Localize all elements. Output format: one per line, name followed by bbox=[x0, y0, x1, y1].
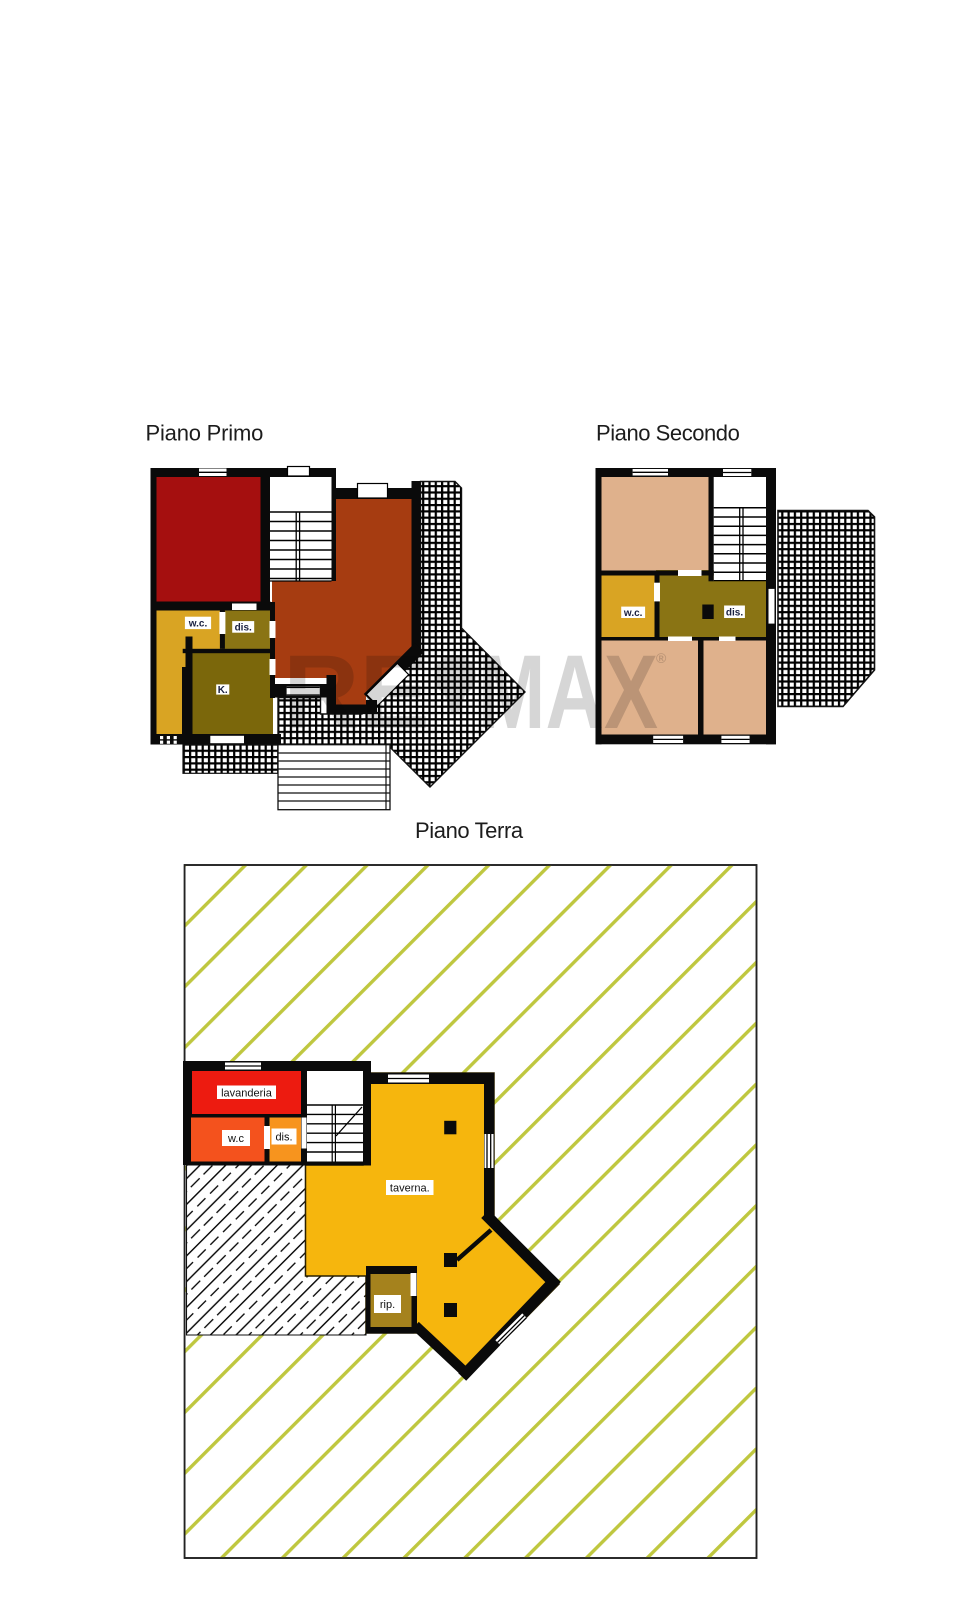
svg-text:w.c: w.c bbox=[227, 1133, 244, 1145]
svg-text:®: ® bbox=[656, 650, 667, 666]
svg-text:Piano Secondo: Piano Secondo bbox=[596, 421, 740, 446]
svg-text:w.c.: w.c. bbox=[188, 619, 208, 630]
svg-text:RE: RE bbox=[283, 634, 430, 751]
svg-text:K.: K. bbox=[218, 685, 228, 696]
svg-text:rip.: rip. bbox=[380, 1299, 395, 1311]
svg-text:w.c.: w.c. bbox=[623, 608, 643, 619]
svg-text:Piano Terra: Piano Terra bbox=[415, 818, 524, 843]
svg-text:dis.: dis. bbox=[726, 608, 743, 619]
svg-text:Piano Primo: Piano Primo bbox=[146, 421, 264, 446]
svg-text:MAX: MAX bbox=[478, 634, 658, 751]
svg-text:lavanderia: lavanderia bbox=[221, 1087, 273, 1099]
svg-text:dis.: dis. bbox=[235, 623, 252, 634]
svg-text:dis.: dis. bbox=[275, 1132, 292, 1144]
svg-text:taverna.: taverna. bbox=[390, 1183, 430, 1195]
